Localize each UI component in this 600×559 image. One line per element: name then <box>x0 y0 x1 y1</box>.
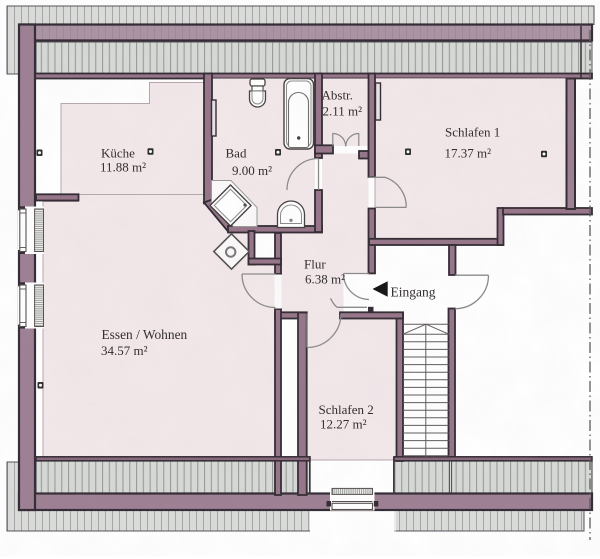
svg-text:Bad: Bad <box>226 146 247 161</box>
svg-text:Schlafen 2: Schlafen 2 <box>319 402 374 417</box>
svg-text:6.38 m²: 6.38 m² <box>305 272 345 287</box>
svg-text:11.88 m²: 11.88 m² <box>100 160 146 175</box>
svg-text:12.27 m²: 12.27 m² <box>320 416 367 431</box>
svg-text:Essen / Wohnen: Essen / Wohnen <box>102 327 188 342</box>
svg-text:Küche: Küche <box>101 146 135 161</box>
svg-text:Abstr.: Abstr. <box>322 88 353 103</box>
svg-text:9.00 m²: 9.00 m² <box>232 163 272 178</box>
svg-text:Schlafen 1: Schlafen 1 <box>445 124 500 139</box>
svg-text:17.37 m²: 17.37 m² <box>445 146 492 161</box>
svg-text:2.11 m²: 2.11 m² <box>323 104 363 119</box>
svg-text:34.57 m²: 34.57 m² <box>101 343 148 358</box>
svg-text:Flur: Flur <box>304 257 326 272</box>
svg-text:Eingang: Eingang <box>391 285 436 300</box>
